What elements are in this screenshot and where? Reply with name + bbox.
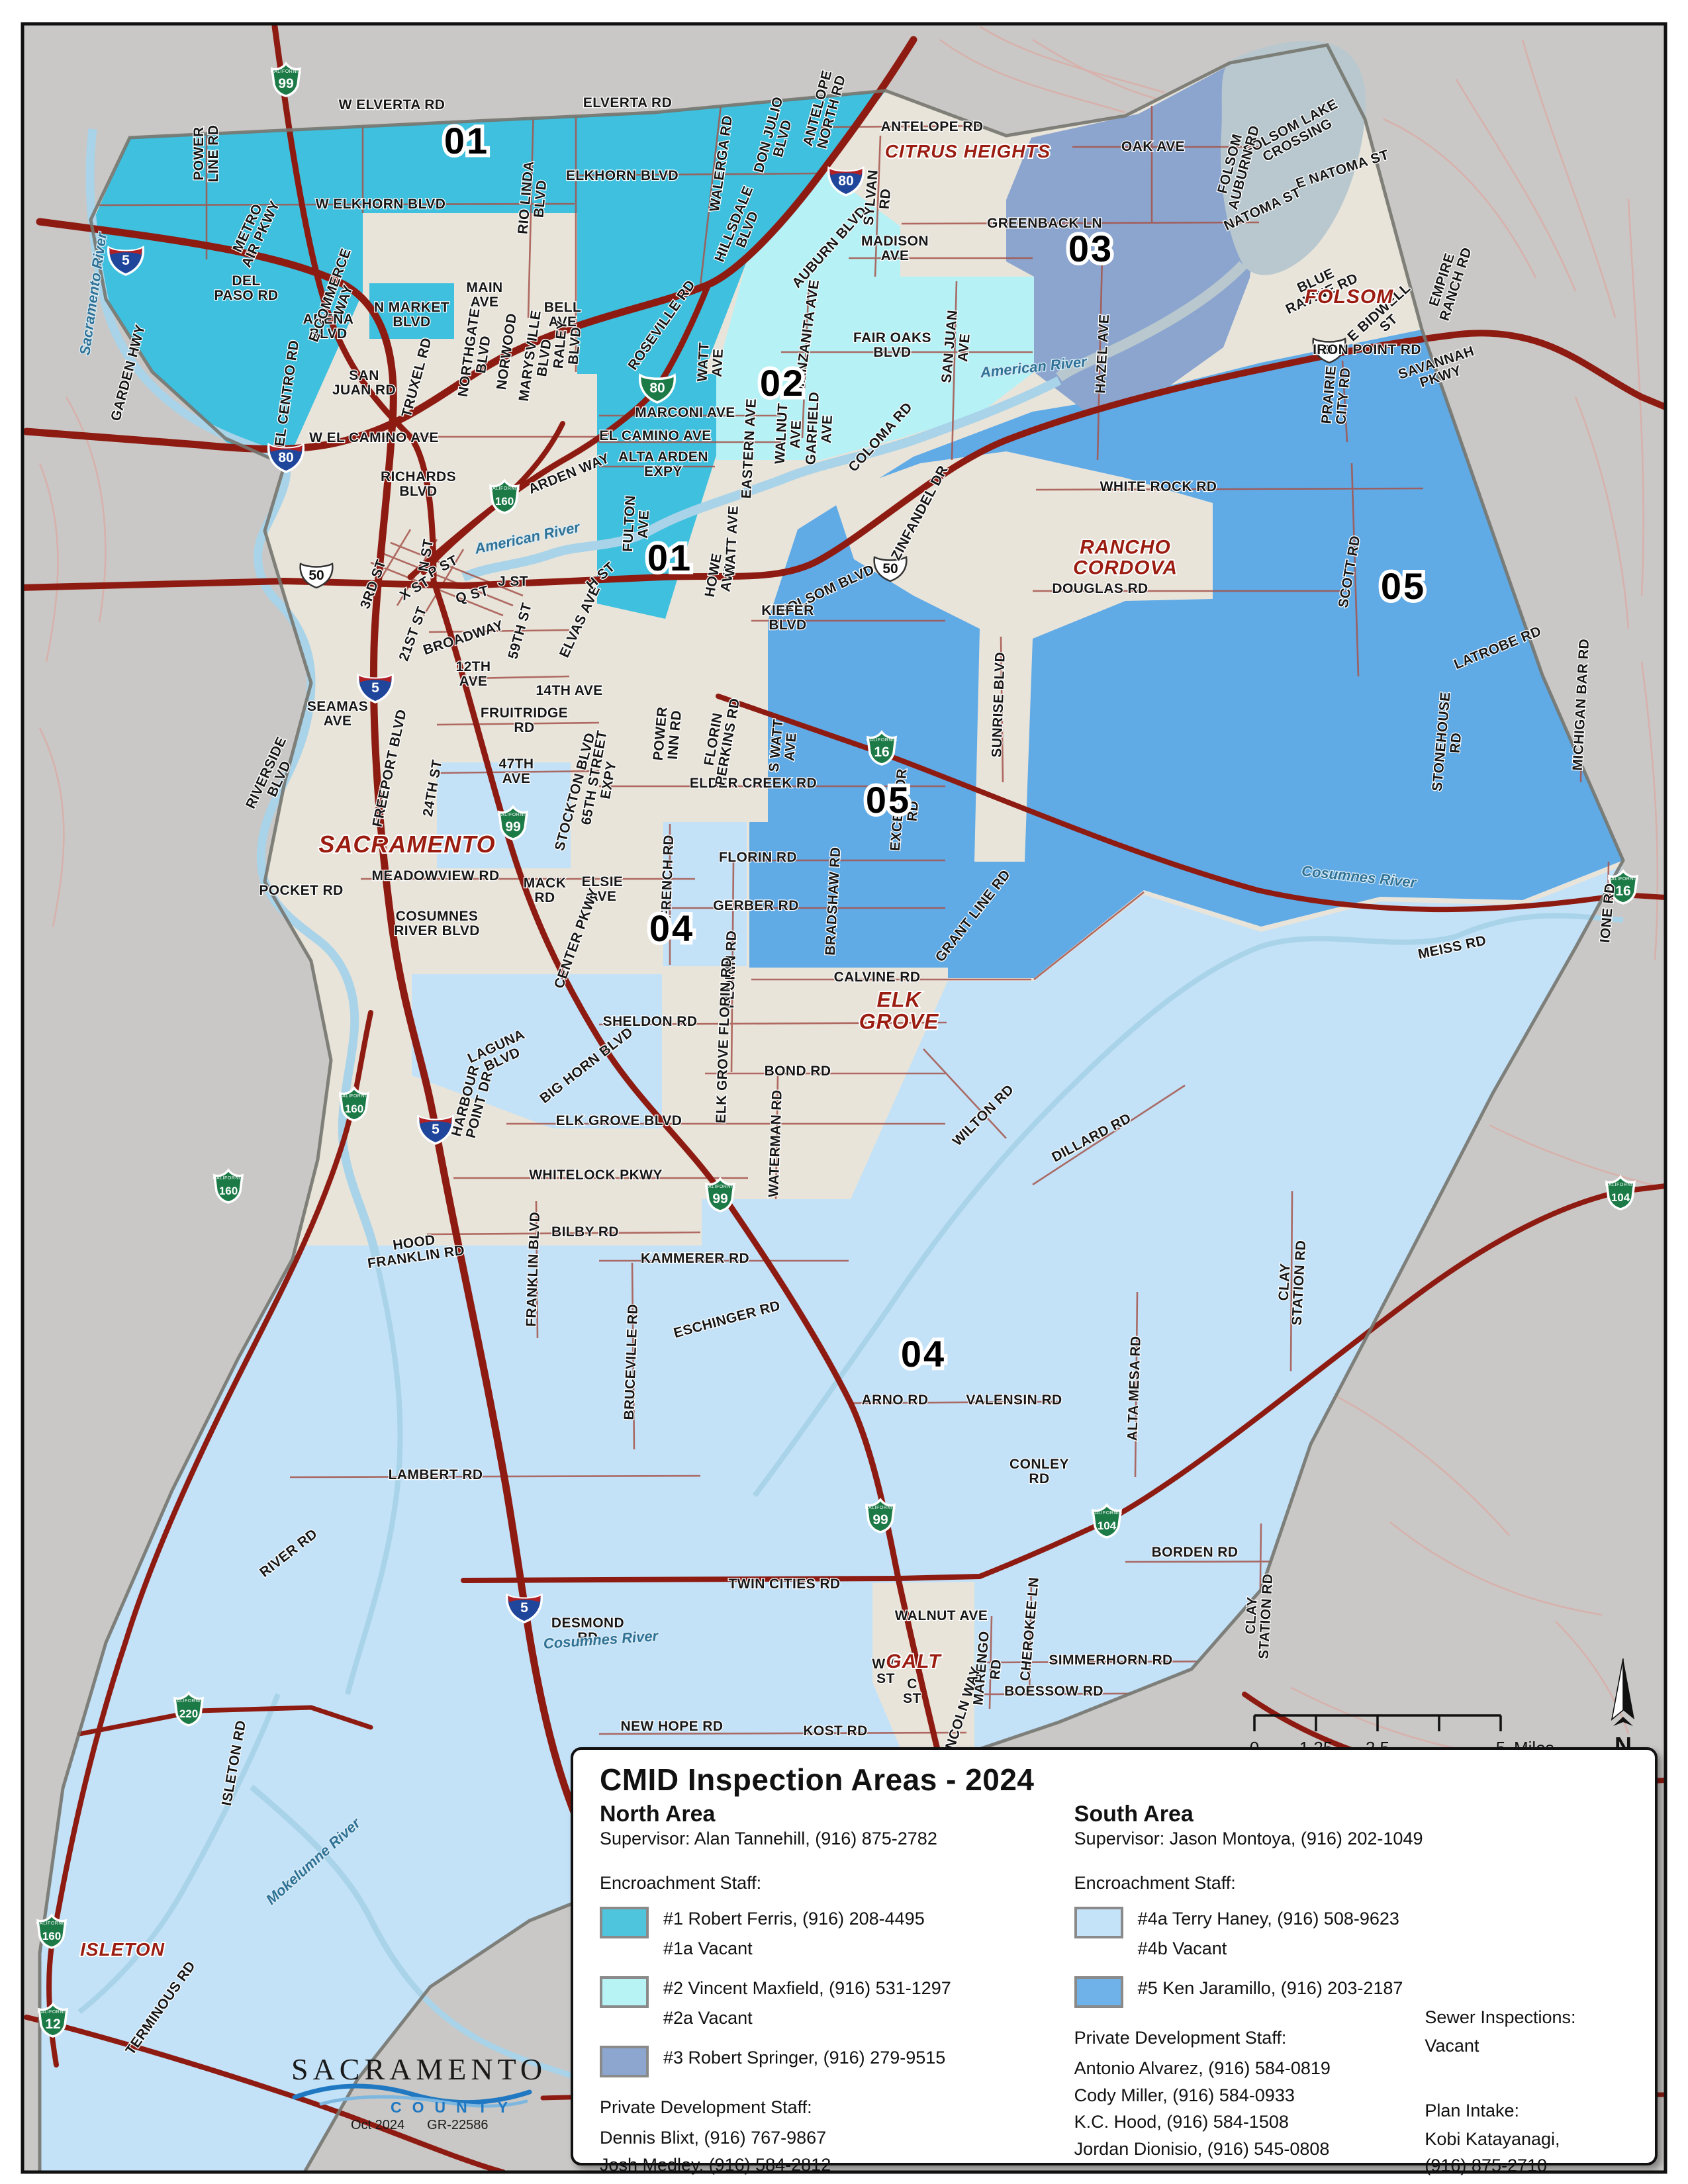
- svg-text:CALIFORNIA: CALIFORNIA: [704, 1185, 735, 1189]
- legend-entry-text: #4a Terry Haney, (916) 508-9623#4b Vacan…: [1138, 1904, 1399, 1963]
- area-number-label: 01: [647, 537, 692, 578]
- legend-entry: #5 Ken Jaramillo, (916) 203-2187: [1074, 1974, 1425, 2008]
- svg-text:CALIFORNIA: CALIFORNIA: [37, 2010, 68, 2015]
- legend-entry: #2 Vincent Maxfield, (916) 531-1297#2a V…: [600, 1974, 1074, 2032]
- legend-entry-text: #3 Robert Springer, (916) 279-9515: [663, 2043, 945, 2073]
- legend-misc-column: Sewer Inspections: Vacant Plan Intake: K…: [1425, 1800, 1631, 2184]
- road-label: PRAIRIECITY RD: [1319, 365, 1353, 426]
- legend-entry-text: #1 Robert Ferris, (916) 208-4495#1a Vaca…: [663, 1904, 925, 1963]
- legend-text-line: Vacant: [1425, 2032, 1631, 2060]
- legend-text-line: (916) 875-2710: [1425, 2152, 1631, 2179]
- city-label: FOLSOM: [1305, 286, 1393, 308]
- legend-panel: CMID Inspection Areas - 2024 North Area …: [571, 1747, 1658, 2165]
- road-label: MEADOWVIEW RD: [371, 868, 499, 884]
- city-label: RANCHOCORDOVA: [1073, 536, 1178, 578]
- svg-text:CALIFORNIA: CALIFORNIA: [1605, 1183, 1636, 1187]
- road-label: MARCONI AVE: [635, 405, 735, 420]
- svg-text:99: 99: [712, 1191, 727, 1206]
- city-label: ISLETON: [80, 1939, 165, 1960]
- road-label: 12THAVE: [456, 659, 491, 689]
- road-label: KOST RD: [803, 1723, 867, 1739]
- legend-swatch: [600, 1907, 649, 1938]
- city-label: GALT: [886, 1651, 942, 1672]
- south-supervisor: Supervisor: Jason Montoya, (916) 202-104…: [1074, 1829, 1425, 1849]
- road-label: VALENSIN RD: [966, 1392, 1062, 1408]
- area-number-label: 05: [866, 779, 911, 821]
- svg-text:50: 50: [882, 561, 898, 576]
- legend-text-line: Tim Wilkerson, (916) 203-1964: [600, 2178, 1074, 2184]
- map-page: 55558080505050CALIFORNIA99CALIFORNIA99CA…: [0, 0, 1688, 2184]
- area-number-label: 04: [649, 907, 694, 949]
- map-credits: Oct 2024GR-22586: [291, 2118, 569, 2133]
- south-encroachment-entries: #4a Terry Haney, (916) 508-9623#4b Vacan…: [1074, 1904, 1425, 2008]
- plan-intake-heading: Plan Intake:: [1425, 2097, 1631, 2124]
- legend-text-line: Dennis Blixt, (916) 767-9867: [600, 2124, 1074, 2152]
- road-label: POCKET RD: [259, 883, 343, 898]
- svg-text:220: 220: [179, 1707, 198, 1720]
- road-label: J ST: [498, 574, 528, 589]
- road-label: BOESSOW RD: [1004, 1684, 1103, 1699]
- legend-swatch: [1074, 1907, 1123, 1938]
- road-label: 47THAVE: [499, 756, 534, 786]
- city-label: SACRAMENTO: [318, 831, 495, 858]
- road-label: GERBER RD: [713, 898, 799, 913]
- road-label: CALVINE RD: [834, 970, 921, 985]
- svg-text:CALIFORNIA: CALIFORNIA: [865, 1506, 896, 1510]
- north-private-heading: Private Development Staff:: [600, 2097, 1074, 2118]
- road-label: ANTELOPE RD: [881, 119, 984, 134]
- road-label: WHITELOCK PKWY: [529, 1167, 663, 1183]
- road-label: W EL CAMINO AVE: [309, 430, 439, 445]
- credit-date: Oct 2024: [351, 2118, 404, 2132]
- legend-text-line: Antonio Alvarez, (916) 584-0819: [1074, 2055, 1425, 2082]
- plan-intake-lines: Kobi Katayanagi,(916) 875-2710: [1425, 2126, 1631, 2179]
- north-encroachment-entries: #1 Robert Ferris, (916) 208-4495#1a Vaca…: [600, 1904, 1074, 2077]
- legend-text-line: Cody Miller, (916) 584-0933: [1074, 2082, 1425, 2109]
- svg-text:CALIFORNIA: CALIFORNIA: [338, 1094, 369, 1099]
- svg-text:160: 160: [495, 495, 514, 508]
- svg-text:80: 80: [838, 173, 853, 189]
- svg-text:99: 99: [505, 819, 520, 835]
- road-label: MAINAVE: [466, 280, 502, 310]
- road-label: FRENCH RD: [659, 835, 677, 919]
- map-title: CMID Inspection Areas - 2024: [600, 1762, 1631, 1797]
- svg-text:CALIFORNIA: CALIFORNIA: [866, 738, 897, 743]
- road-label: POWERINN RD: [651, 706, 685, 762]
- legend-text-line: Kobi Katayanagi,: [1425, 2126, 1631, 2153]
- area-number-label: 03: [1068, 228, 1113, 269]
- svg-text:104: 104: [1611, 1191, 1630, 1204]
- legend-entry: #4a Terry Haney, (916) 508-9623#4b Vacan…: [1074, 1904, 1425, 1963]
- road-label: BOND RD: [765, 1064, 831, 1079]
- svg-text:104: 104: [1098, 1520, 1117, 1532]
- svg-text:160: 160: [42, 1930, 61, 1942]
- legend-north-area: North Area Supervisor: Alan Tannehill, (…: [600, 1800, 1074, 2184]
- svg-text:CALIFORNIA: CALIFORNIA: [497, 813, 528, 817]
- area-number-label: 04: [901, 1333, 946, 1375]
- road-label: WHITE ROCK RD: [1100, 479, 1217, 494]
- svg-text:16: 16: [874, 745, 889, 760]
- road-label: SIMMERHORN RD: [1049, 1653, 1172, 1668]
- road-label: W ELVERTA RD: [339, 97, 445, 113]
- road-label: NEW HOPE RD: [621, 1719, 724, 1734]
- road-label: POWERLINE RD: [191, 125, 221, 183]
- road-label: BILBY RD: [551, 1224, 619, 1240]
- road-label: FLORIN RD: [719, 850, 797, 865]
- legend-south-area: South Area Supervisor: Jason Montoya, (9…: [1074, 1800, 1425, 2184]
- road-label: WALNUT AVE: [895, 1608, 988, 1623]
- svg-text:80: 80: [278, 450, 293, 465]
- legend-entry-text: #5 Ken Jaramillo, (916) 203-2187: [1138, 1974, 1403, 2003]
- road-label: ELKHORN BLVD: [566, 168, 679, 183]
- road-label: SHELDON RD: [603, 1014, 698, 1029]
- svg-text:CALIFORNIA: CALIFORNIA: [36, 1921, 67, 1926]
- north-encroachment-heading: Encroachment Staff:: [600, 1873, 1074, 1893]
- legend-entry-text: #2 Vincent Maxfield, (916) 531-1297#2a V…: [663, 1974, 951, 2032]
- legend-text-line: Jordan Dionisio, (916) 545-0808: [1074, 2136, 1425, 2163]
- legend-text-line: Josh Medley, (916) 584-2812: [600, 2152, 1074, 2179]
- svg-text:50: 50: [308, 568, 324, 583]
- sacramento-county-logo: SACRAMENTO COUNTY Oct 2024GR-22586: [291, 2052, 569, 2133]
- road-label: 14TH AVE: [536, 683, 602, 698]
- svg-text:5: 5: [122, 253, 130, 268]
- legend-swatch: [600, 2046, 649, 2077]
- svg-text:CALIFORNIA: CALIFORNIA: [1091, 1511, 1122, 1516]
- city-label: CITRUS HEIGHTS: [885, 141, 1051, 161]
- svg-text:16: 16: [1615, 884, 1630, 899]
- road-label: ELDER CREEK RD: [690, 776, 817, 791]
- road-label: OAK AVE: [1121, 139, 1185, 154]
- road-label: ARNO RD: [862, 1392, 929, 1408]
- road-label: EL CAMINO AVE: [599, 428, 711, 443]
- road-label: KAMMERER RD: [641, 1251, 749, 1266]
- legend-swatch: [1074, 1976, 1123, 2008]
- logo-county-text: COUNTY: [391, 2099, 569, 2116]
- road-label: DOUGLAS RD: [1052, 581, 1148, 596]
- road-label: TWIN CITIES RD: [729, 1576, 841, 1592]
- road-label: ELK GROVE BLVD: [556, 1113, 682, 1128]
- svg-text:CALIFORNIA: CALIFORNIA: [212, 1176, 244, 1181]
- svg-text:5: 5: [432, 1122, 440, 1137]
- svg-text:CALIFORNIA: CALIFORNIA: [489, 486, 520, 491]
- svg-text:12: 12: [45, 2017, 60, 2032]
- svg-text:5: 5: [371, 680, 379, 696]
- area-number-label: 05: [1381, 565, 1426, 607]
- legend-text-line: K.C. Hood, (916) 584-1508: [1074, 2109, 1425, 2136]
- north-area-heading: North Area: [600, 1801, 1074, 1827]
- svg-text:160: 160: [345, 1103, 363, 1115]
- area-number-label: 01: [444, 120, 489, 161]
- road-label: RALEYBLVD: [551, 320, 585, 371]
- north-supervisor: Supervisor: Alan Tannehill, (916) 875-27…: [600, 1829, 1074, 1849]
- road-label: COSUMNESRIVER BLVD: [394, 909, 480, 938]
- legend-entry: #3 Robert Springer, (916) 279-9515: [600, 2043, 1074, 2077]
- sewer-lines: Vacant: [1425, 2032, 1631, 2060]
- road-label: IRON POINT RD: [1313, 342, 1421, 357]
- svg-text:5: 5: [520, 1600, 528, 1615]
- svg-text:CALIFORNIA: CALIFORNIA: [1607, 877, 1638, 882]
- sewer-heading: Sewer Inspections:: [1425, 2004, 1631, 2031]
- logo-sacramento-text: SACRAMENTO: [291, 2052, 569, 2087]
- south-private-staff: Antonio Alvarez, (916) 584-0819Cody Mill…: [1074, 2055, 1425, 2162]
- road-label: ELVERTA RD: [583, 95, 672, 111]
- road-label: LAMBERT RD: [389, 1467, 483, 1482]
- road-label: W ELKHORN BLVD: [316, 197, 446, 212]
- south-encroachment-heading: Encroachment Staff:: [1074, 1873, 1425, 1893]
- north-private-staff: Dennis Blixt, (916) 767-9867Josh Medley,…: [600, 2124, 1074, 2184]
- credit-ref: GR-22586: [427, 2118, 488, 2132]
- road-label: BORDEN RD: [1152, 1545, 1239, 1560]
- south-area-heading: South Area: [1074, 1801, 1425, 1827]
- svg-text:99: 99: [872, 1512, 888, 1527]
- road-label: KIEFERBLVD: [761, 603, 814, 633]
- svg-text:160: 160: [219, 1185, 238, 1197]
- legend-swatch: [600, 1976, 649, 2008]
- svg-text:99: 99: [278, 76, 293, 91]
- svg-text:80: 80: [649, 381, 665, 396]
- svg-text:CALIFORNIA: CALIFORNIA: [173, 1699, 204, 1704]
- legend-entry: #1 Robert Ferris, (916) 208-4495#1a Vaca…: [600, 1904, 1074, 1963]
- area-number-label: 02: [760, 362, 805, 404]
- svg-text:CALIFORNIA: CALIFORNIA: [270, 69, 301, 74]
- south-private-heading: Private Development Staff:: [1074, 2028, 1425, 2048]
